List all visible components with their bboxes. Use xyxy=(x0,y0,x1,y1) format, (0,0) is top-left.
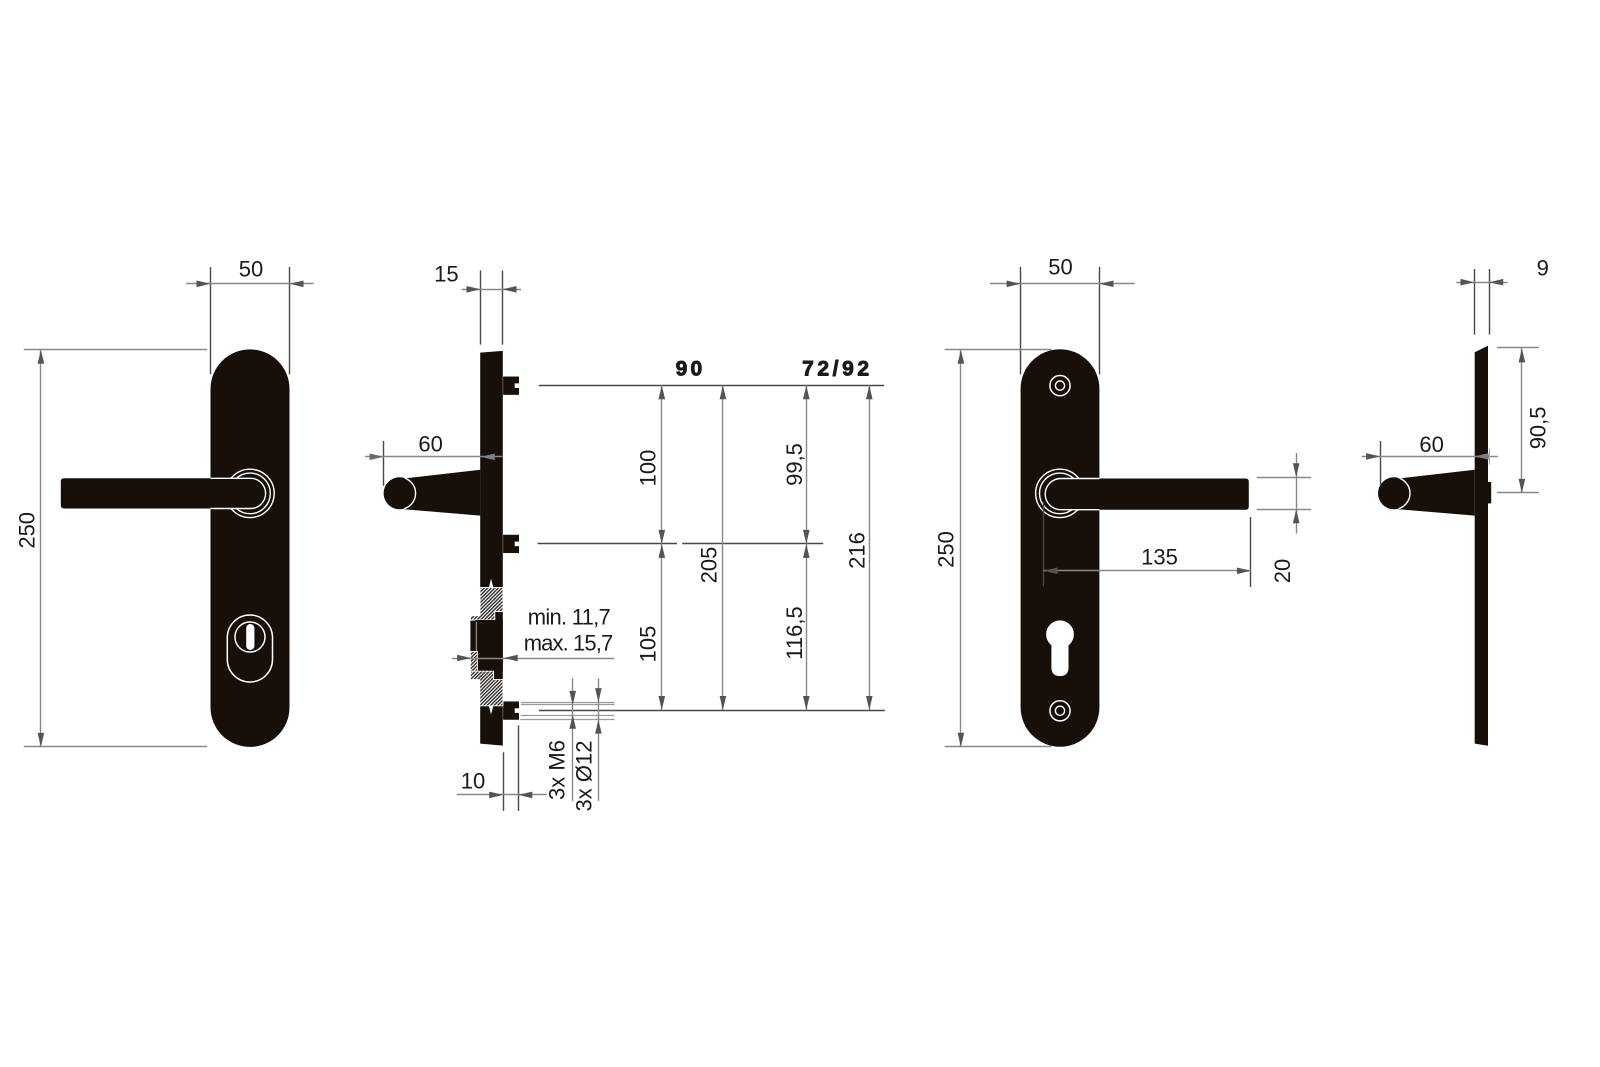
svg-text:10: 10 xyxy=(461,769,485,794)
svg-text:99,5: 99,5 xyxy=(782,443,807,486)
svg-text:50: 50 xyxy=(1048,255,1072,280)
svg-text:216: 216 xyxy=(845,532,870,569)
svg-text:9: 9 xyxy=(1537,255,1549,280)
svg-text:60: 60 xyxy=(1419,432,1443,457)
svg-text:min. 11,7: min. 11,7 xyxy=(528,604,611,629)
svg-text:90,5: 90,5 xyxy=(1526,406,1551,449)
svg-text:100: 100 xyxy=(636,450,661,487)
svg-text:3x Ø12: 3x Ø12 xyxy=(571,741,596,812)
svg-text:135: 135 xyxy=(1141,545,1178,570)
svg-text:205: 205 xyxy=(697,547,722,584)
svg-text:250: 250 xyxy=(15,512,40,549)
svg-text:50: 50 xyxy=(239,257,263,282)
svg-text:3x M6: 3x M6 xyxy=(545,740,570,800)
svg-text:15: 15 xyxy=(434,261,458,286)
svg-text:90: 90 xyxy=(676,358,703,381)
svg-text:60: 60 xyxy=(418,432,442,457)
svg-text:max. 15,7: max. 15,7 xyxy=(524,630,614,655)
svg-text:116,5: 116,5 xyxy=(782,606,807,659)
svg-text:250: 250 xyxy=(933,531,958,568)
svg-text:72/92: 72/92 xyxy=(802,358,869,381)
svg-text:105: 105 xyxy=(636,626,661,663)
svg-text:20: 20 xyxy=(1270,559,1295,583)
